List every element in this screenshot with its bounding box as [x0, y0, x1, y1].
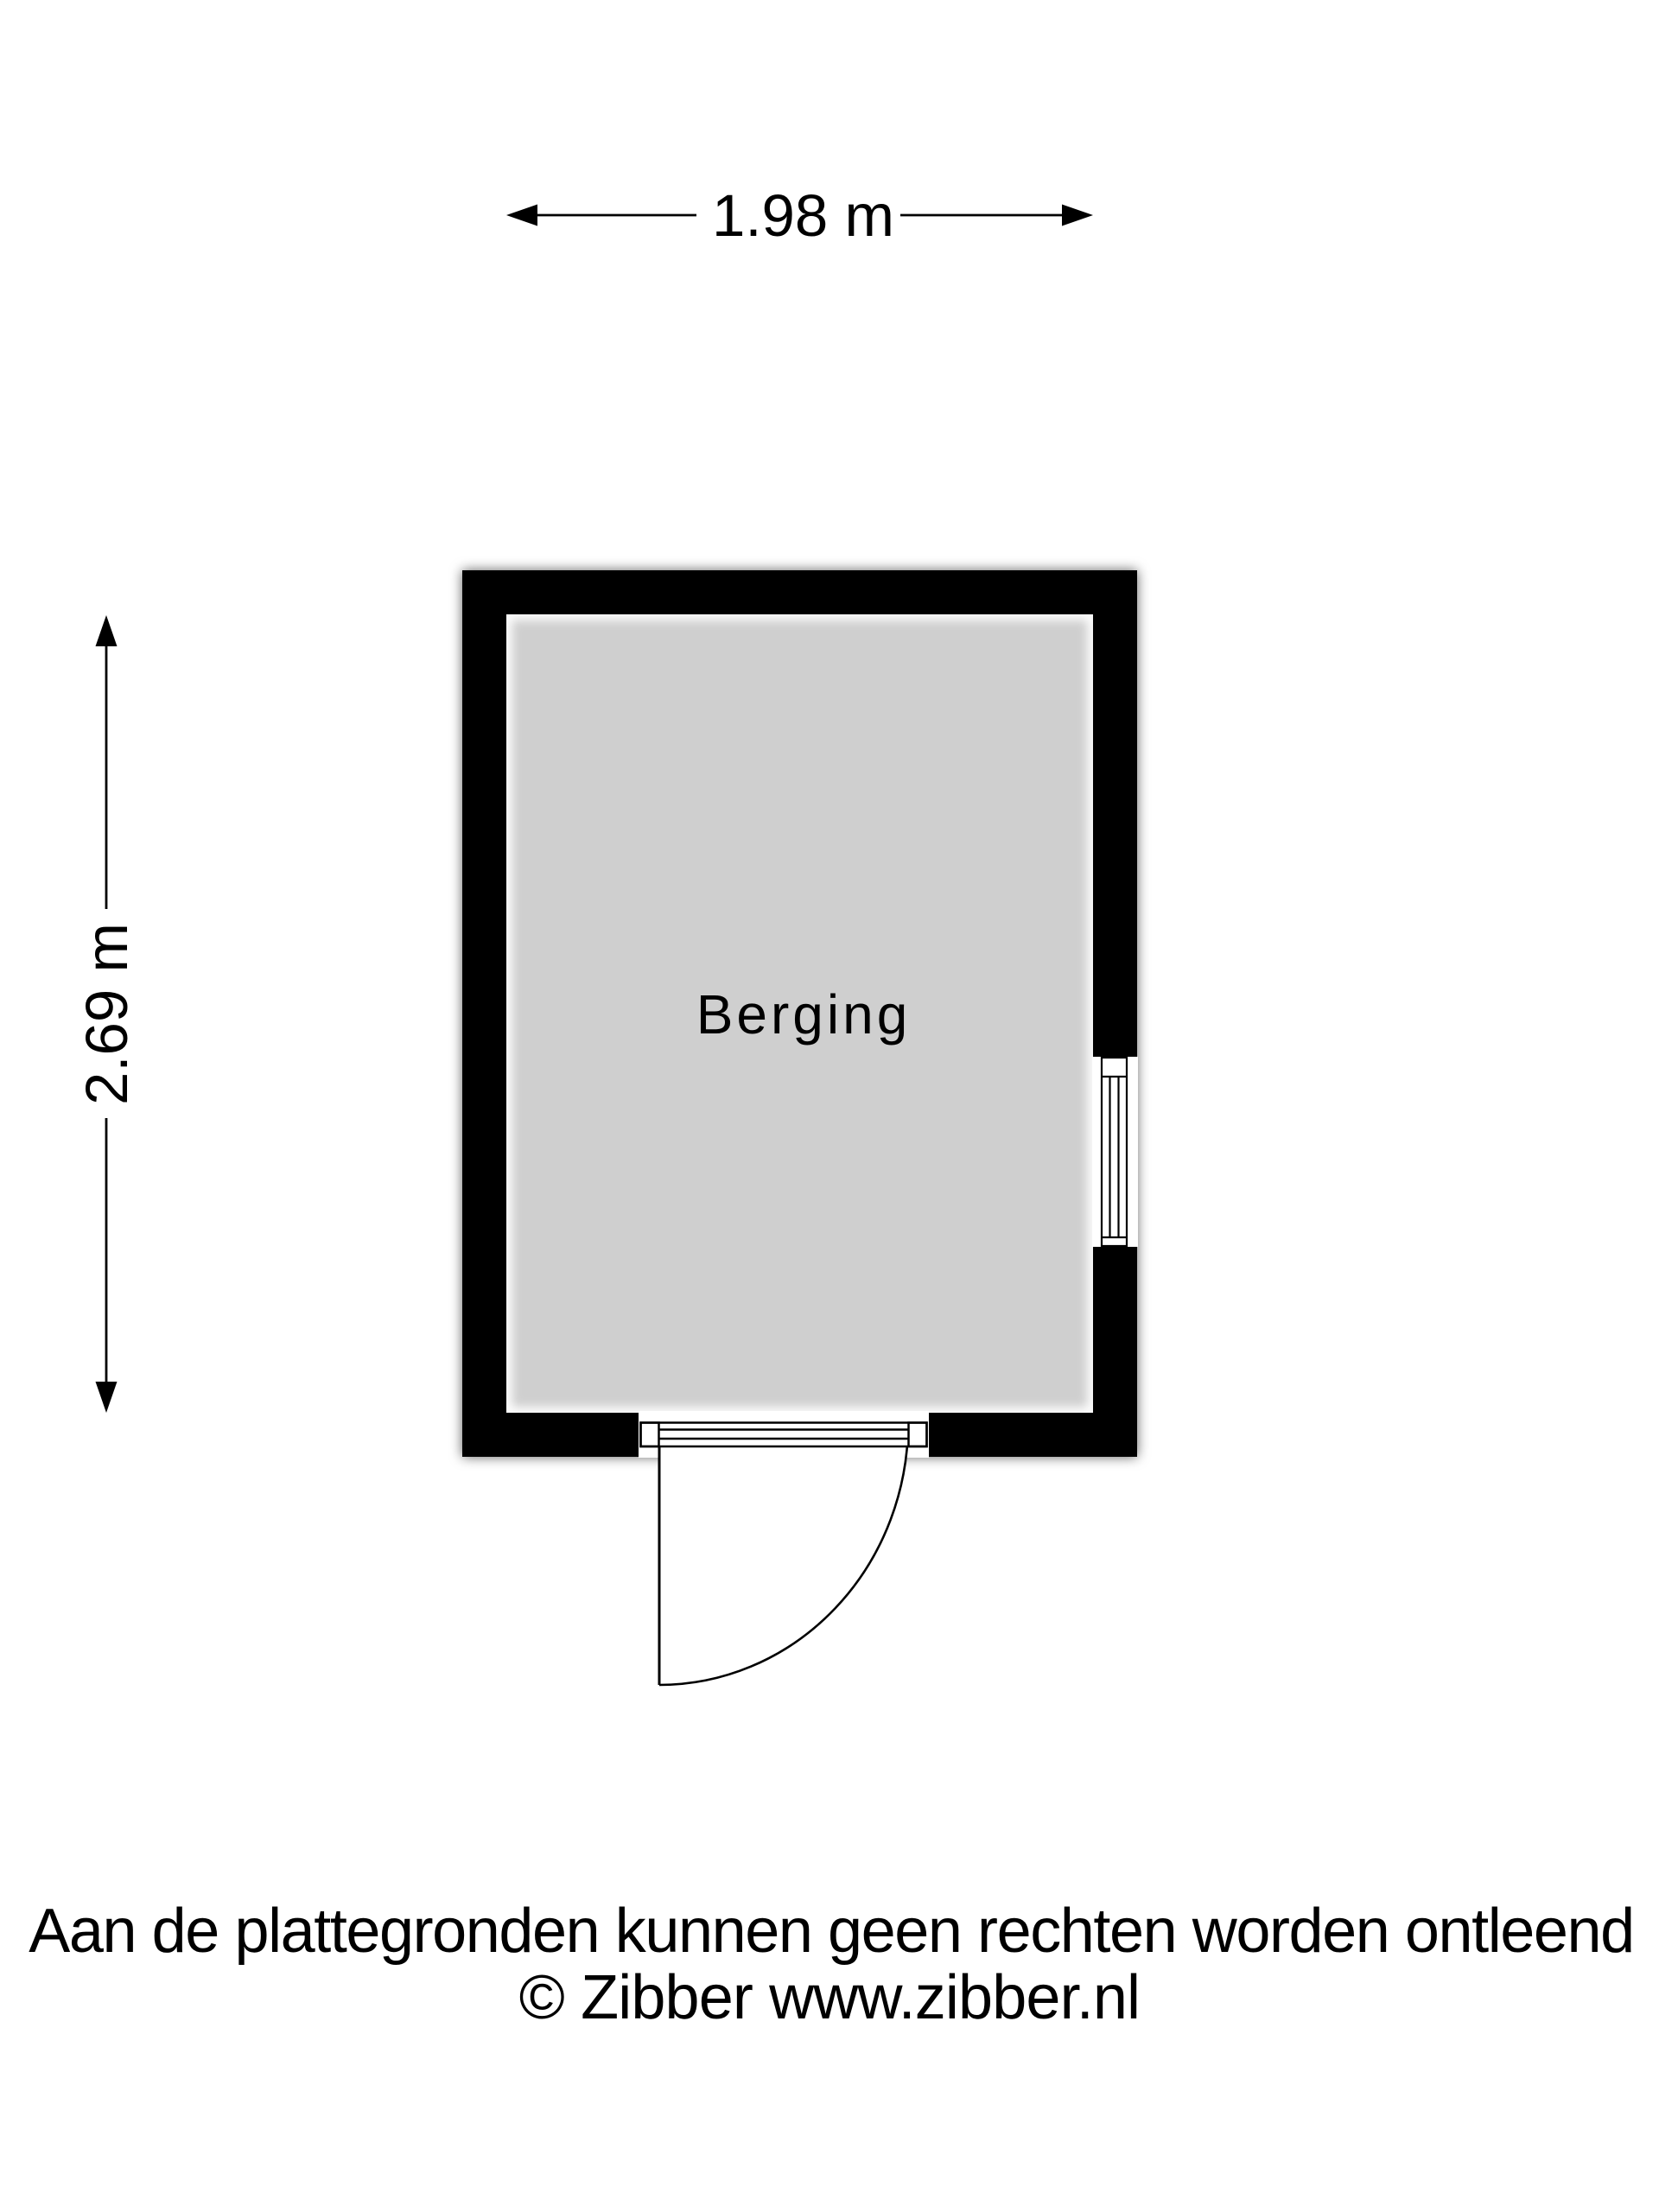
- svg-text:© Zibber www.zibber.nl: © Zibber www.zibber.nl: [519, 1963, 1140, 2032]
- svg-text:2.69 m: 2.69 m: [73, 923, 140, 1105]
- svg-text:Berging: Berging: [696, 983, 912, 1046]
- svg-text:1.98 m: 1.98 m: [712, 182, 894, 249]
- svg-text:Aan de plattegronden kunnen ge: Aan de plattegronden kunnen geen rechten…: [29, 1897, 1633, 1966]
